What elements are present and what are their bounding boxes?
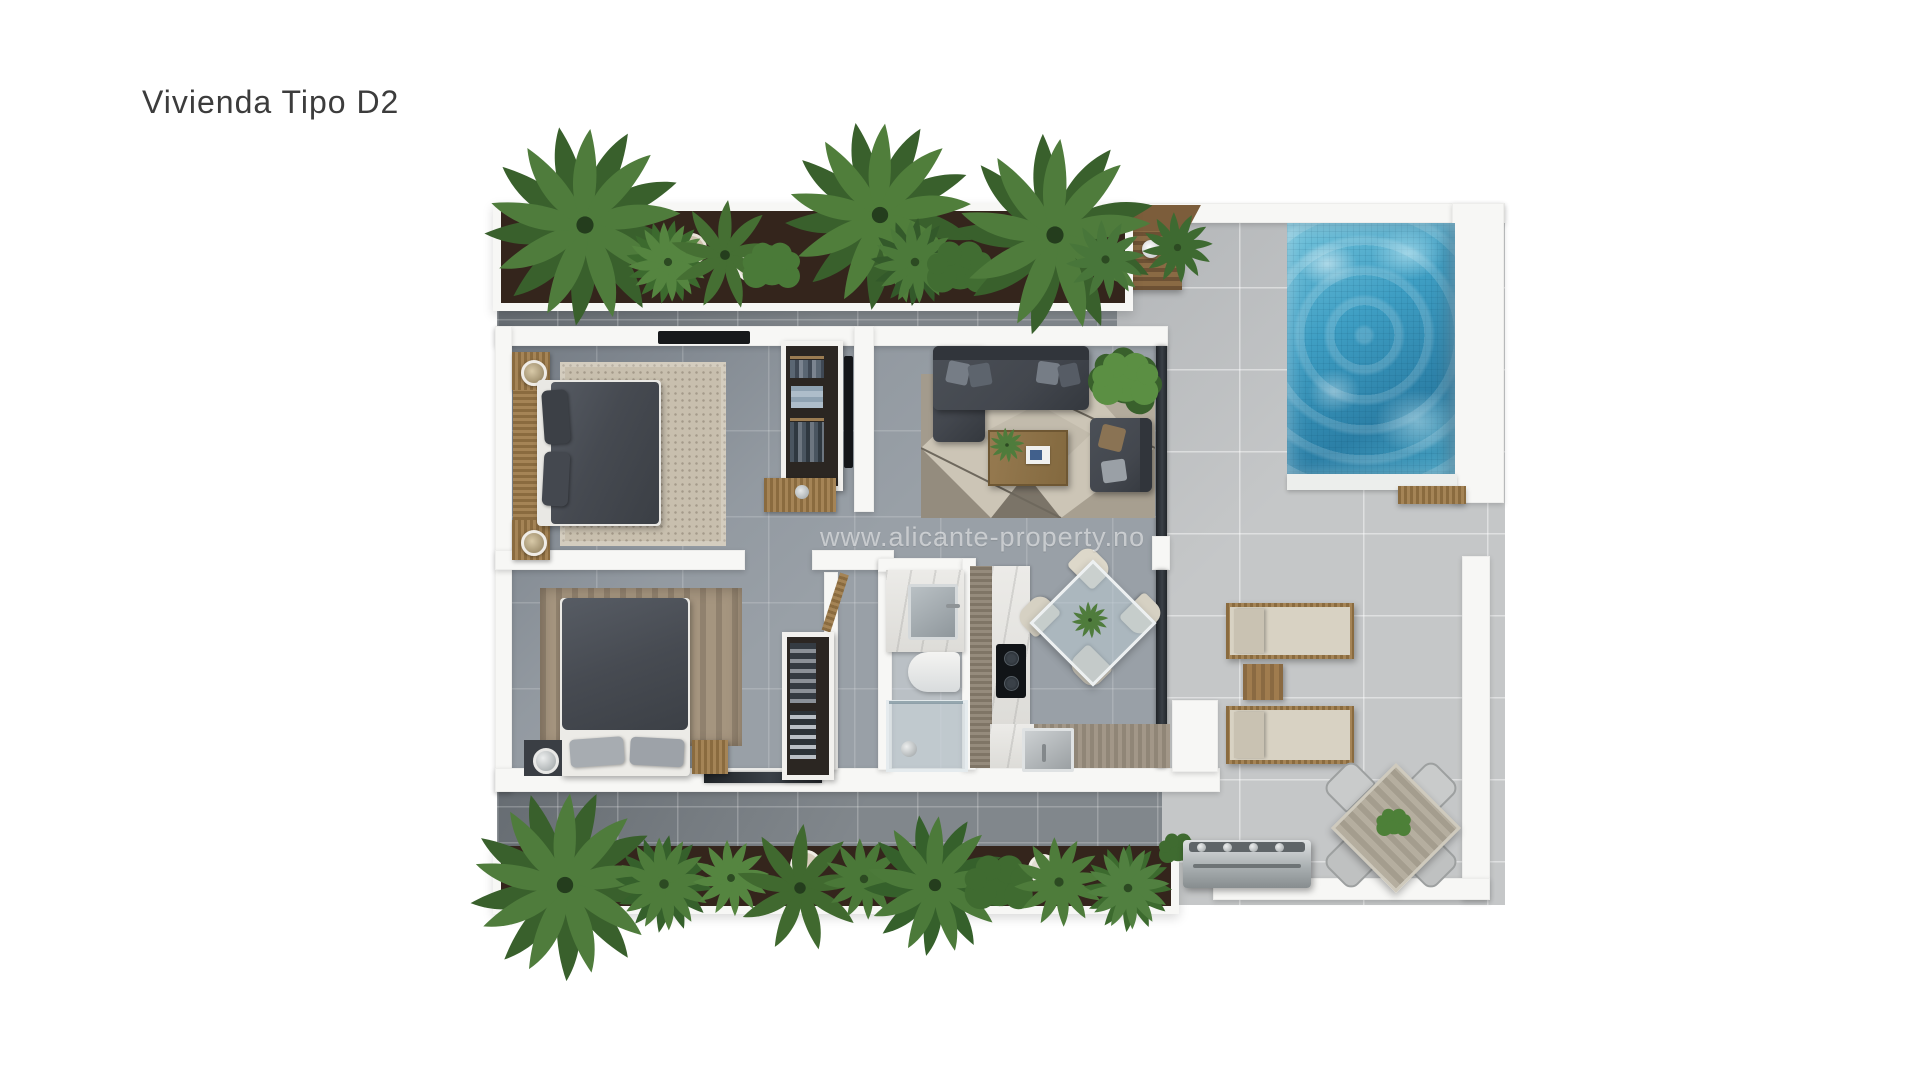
armchair <box>1090 418 1152 492</box>
fern-plant <box>1078 838 1178 938</box>
bbq-knob-icon <box>1275 843 1284 852</box>
bedroom2-pillow-2 <box>629 737 684 768</box>
bedroom1-tv <box>658 331 750 344</box>
fern-plant-overhang <box>1135 205 1220 290</box>
bathroom-sink <box>908 584 958 640</box>
page-title: Vivienda Tipo D2 <box>142 84 399 121</box>
bbq-handle <box>1193 864 1301 868</box>
kitchen-counter-left <box>970 566 992 768</box>
sofa-back <box>933 346 1089 360</box>
desk-items <box>795 485 809 499</box>
bedroom2-closet <box>782 632 834 780</box>
coffee-table-plant <box>986 424 1028 466</box>
bbq-grill <box>1183 840 1311 888</box>
bbq-knob-icon <box>1197 843 1206 852</box>
bathroom-shower <box>886 700 968 772</box>
sofa-pillow <box>1036 361 1061 386</box>
watermark: www.alicante-property.no <box>820 522 1145 553</box>
clothes-rail <box>790 418 824 421</box>
house-corner-step <box>1172 700 1218 772</box>
lounger-side-table <box>1243 664 1283 700</box>
door-mid-stub <box>1152 536 1170 570</box>
burner-icon <box>1004 676 1019 691</box>
living-room-potted-plant <box>1080 336 1172 428</box>
sofa <box>933 346 1089 410</box>
floor-plan-render: Vivienda Tipo D2 <box>0 0 1920 1080</box>
kitchen-sink <box>1022 728 1074 772</box>
bedroom2-pillow-1 <box>569 736 625 768</box>
shower-drain-icon <box>901 741 917 757</box>
sun-lounger-1 <box>1226 603 1354 659</box>
bedroom1-headboard <box>513 390 537 520</box>
sun-lounger-2 <box>1226 706 1354 764</box>
lounger-headrest <box>1234 609 1264 653</box>
bedroom1-tv-panel <box>844 356 853 468</box>
kitchen-faucet-icon <box>1042 744 1046 762</box>
kitchen-cooktop <box>996 644 1026 698</box>
bedroom1-living-wall <box>854 326 874 512</box>
bathroom-toilet <box>908 652 960 692</box>
clothes-rail <box>790 356 824 359</box>
bedroom1-wardrobe <box>781 341 843 491</box>
table-lamp-icon <box>521 530 547 556</box>
coffee-table-book-art <box>1030 450 1042 460</box>
outdoor-table-plant <box>1370 800 1418 848</box>
hanging-clothes <box>790 422 824 462</box>
armchair-pillow <box>1101 458 1128 483</box>
pool-bench <box>1398 486 1466 504</box>
folded-towels <box>791 386 823 408</box>
terrace-right-wall <box>1462 556 1490 900</box>
bedroom1-pillow-1 <box>541 389 571 445</box>
swimming-pool <box>1287 223 1455 478</box>
bedroom2-nightstand-right <box>692 740 728 774</box>
sofa-pillow <box>967 362 992 387</box>
bedroom2-duvet <box>562 598 688 730</box>
hanging-clothes <box>790 360 824 378</box>
sofa-pillow <box>1057 362 1081 388</box>
bedroom1-pillow-2 <box>542 451 571 506</box>
closet-shelves <box>790 643 816 703</box>
bathroom-faucet-icon <box>946 604 960 608</box>
dining-centerpiece-plant <box>1068 598 1112 642</box>
bbq-burners <box>1189 842 1305 852</box>
armchair-back <box>1140 418 1152 492</box>
lounger-headrest <box>1234 712 1264 758</box>
bbq-knob-icon <box>1223 843 1232 852</box>
sofa-pillow <box>945 360 971 386</box>
closet-shelves <box>790 711 816 759</box>
shower-glass <box>889 701 963 704</box>
pool-right-wall <box>1452 203 1504 503</box>
speaker-icon <box>533 748 559 774</box>
burner-icon <box>1004 651 1019 666</box>
bbq-knob-icon <box>1249 843 1258 852</box>
